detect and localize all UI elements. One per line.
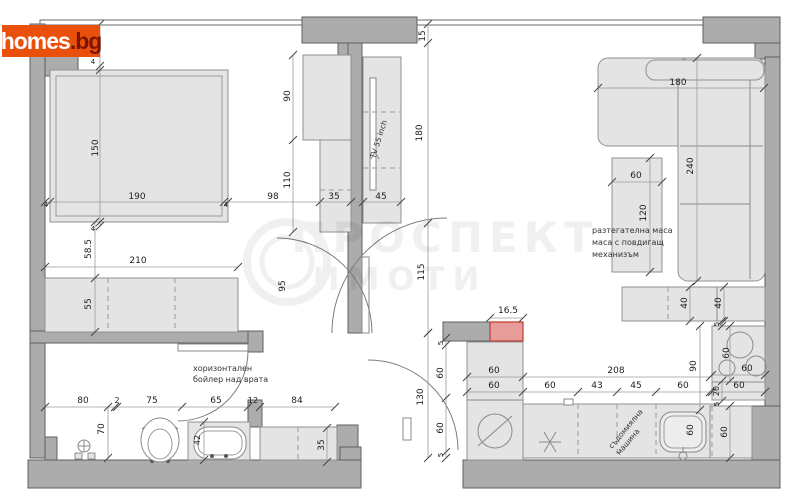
dim-label: 210 [129,256,146,266]
shower-fitting-1 [75,453,82,459]
wall-bottom-left [28,460,361,488]
washing-machine-column [467,342,523,460]
shower-fitting-2 [88,453,95,459]
dim-label: 65 [210,396,221,406]
dim-label: 180 [415,124,425,141]
wall-bottom-kitchen [463,460,780,488]
dim-label: 190 [128,192,145,202]
dim-label: 4 [91,58,96,66]
dim-label: 4 [91,225,96,233]
homes-logo: homes.bg [2,25,100,57]
dim-label: 240 [686,157,696,174]
dim-label: 208 [607,366,624,376]
wall-left [30,24,45,458]
dim-label: 5 [713,402,721,406]
dim-label: 15 [418,30,428,41]
logo-text-main: homes [1,30,70,53]
dim-label: 60 [720,426,730,438]
note-boiler: хоризонталенбойлер над врата [193,364,268,384]
dim-label: 45 [630,381,641,391]
dim-label: 16.5 [498,306,518,316]
dim-label: 42 [193,435,202,445]
door-arc-bathroom [178,351,248,421]
dim-label: 90 [283,90,293,102]
wardrobe-bedroom [45,278,238,332]
dim-label: 5 [437,341,445,345]
sofa-back-cushion [646,60,764,80]
watermark: ПРОСПЕКТИМОТИ [247,213,599,302]
dim-label: 58.5 [84,239,94,259]
door-leaf-bathroom [178,344,248,351]
dim-label: 84 [291,396,303,406]
dim-label: 150 [91,139,101,156]
dim-label: 5 [437,453,445,457]
dim-label: 60 [686,424,696,436]
wall-kitchen-stub [443,322,491,341]
wall-bathroom-top [30,331,263,343]
dim-label: 35 [317,439,327,450]
hob-cabinet [712,326,765,382]
wall-bottom-right-step [752,406,780,460]
dim-label: 60 [741,364,753,374]
dim-label: 80 [77,396,89,406]
dim-label: 35 [328,192,339,202]
dim-label: 43 [591,381,602,391]
cabinet-under-sofa [622,287,765,321]
bath-sink-tap-2 [224,454,228,458]
logo-text-suffix: .bg [70,30,102,53]
wall-top-center [302,17,417,43]
door-leaf-entry [403,418,411,440]
dim-label: 60 [677,381,689,391]
dim-label: 40 [680,297,690,309]
dim-label: 5 [713,322,721,326]
dim-label: 180 [669,78,686,88]
floorplan-drawing: 38.5415044190498354590110151801159558.52… [0,0,800,502]
watermark-part: ПРОСПЕКТ [291,213,598,262]
wall-bathroom-top-step [248,331,263,352]
dim-label: 70 [97,423,107,435]
dim-label: 90 [689,360,699,372]
wall-highlighted-segment [490,322,523,341]
wall-right [765,57,780,460]
fridge-handle [564,399,573,405]
dim-label: 55 [84,298,94,309]
dim-label: 60 [436,367,446,379]
kitchen-counter-right [710,406,752,458]
dim-label: 60 [722,347,732,359]
wall-entry-block [340,447,361,460]
dim-label: 98 [267,192,279,202]
floorplan-image[interactable]: 38.5415044190498354590110151801159558.52… [0,0,800,502]
dim-label: 130 [416,388,426,405]
dim-label: 110 [283,171,293,188]
bath-sink-tap-1 [210,454,214,458]
dim-label: 4 [224,201,229,209]
dim-label: 20 [712,386,721,396]
wall-pilaster-bottomleft [45,437,57,460]
dim-label: 40 [714,297,724,309]
toilet-bowl [141,418,179,462]
dim-label: 12 [248,396,258,405]
dim-label: 60 [436,422,446,434]
dim-label: 2 [114,396,119,405]
dim-label: 4 [44,201,49,209]
dim-label: 60 [544,381,556,391]
dim-label: 60 [733,381,745,391]
dim-label: 45 [375,192,386,202]
closet-upper [303,55,351,140]
dim-label: 60 [488,366,500,376]
wall-top-right [703,17,780,43]
dim-label: 120 [639,204,649,221]
watermark-part: ИМОТИ [313,260,487,298]
dim-label: 60 [630,171,642,181]
dim-label: 60 [488,381,500,391]
dim-label: 75 [146,396,157,406]
